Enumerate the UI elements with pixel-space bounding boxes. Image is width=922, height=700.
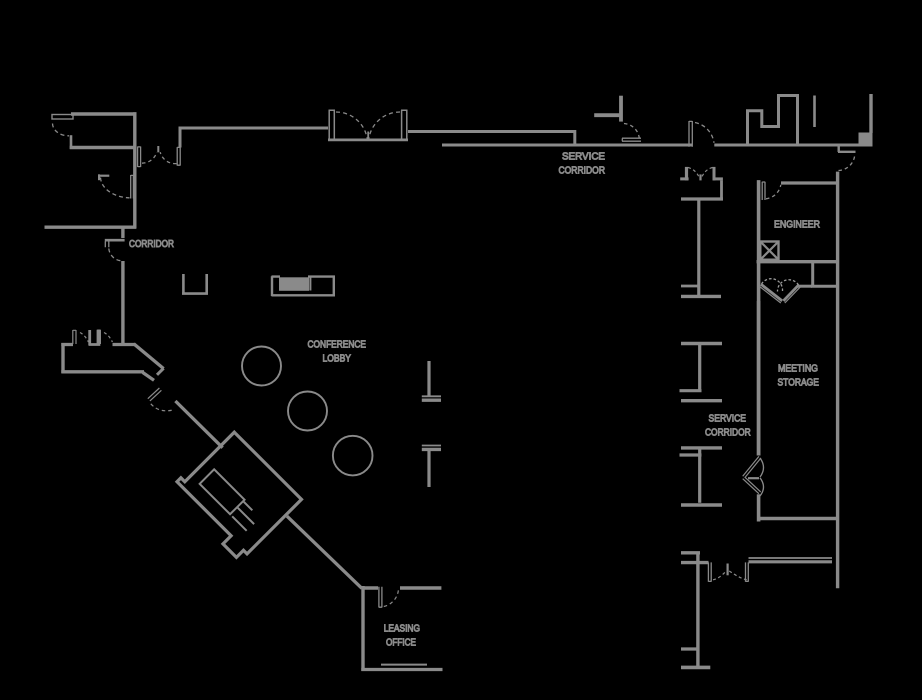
svg-text:MEETING: MEETING (778, 364, 818, 375)
svg-text:SERVICE: SERVICE (709, 414, 747, 425)
svg-text:OFFICE: OFFICE (386, 638, 416, 649)
svg-text:CORRIDOR: CORRIDOR (559, 166, 606, 177)
svg-text:LEASING: LEASING (384, 624, 420, 635)
svg-text:STORAGE: STORAGE (778, 378, 820, 389)
svg-text:CORRIDOR: CORRIDOR (705, 428, 751, 439)
svg-text:ENGINEER: ENGINEER (774, 220, 820, 231)
svg-text:CONFERENCE: CONFERENCE (308, 340, 367, 351)
svg-text:LOBBY: LOBBY (323, 354, 352, 365)
svg-text:SERVICE: SERVICE (562, 152, 605, 163)
svg-text:CORRIDOR: CORRIDOR (129, 239, 174, 250)
